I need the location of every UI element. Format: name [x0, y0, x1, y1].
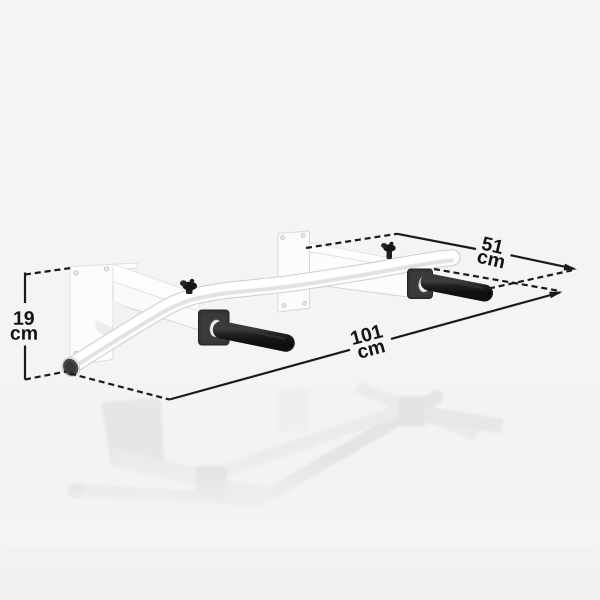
svg-text:cm: cm [10, 323, 38, 345]
